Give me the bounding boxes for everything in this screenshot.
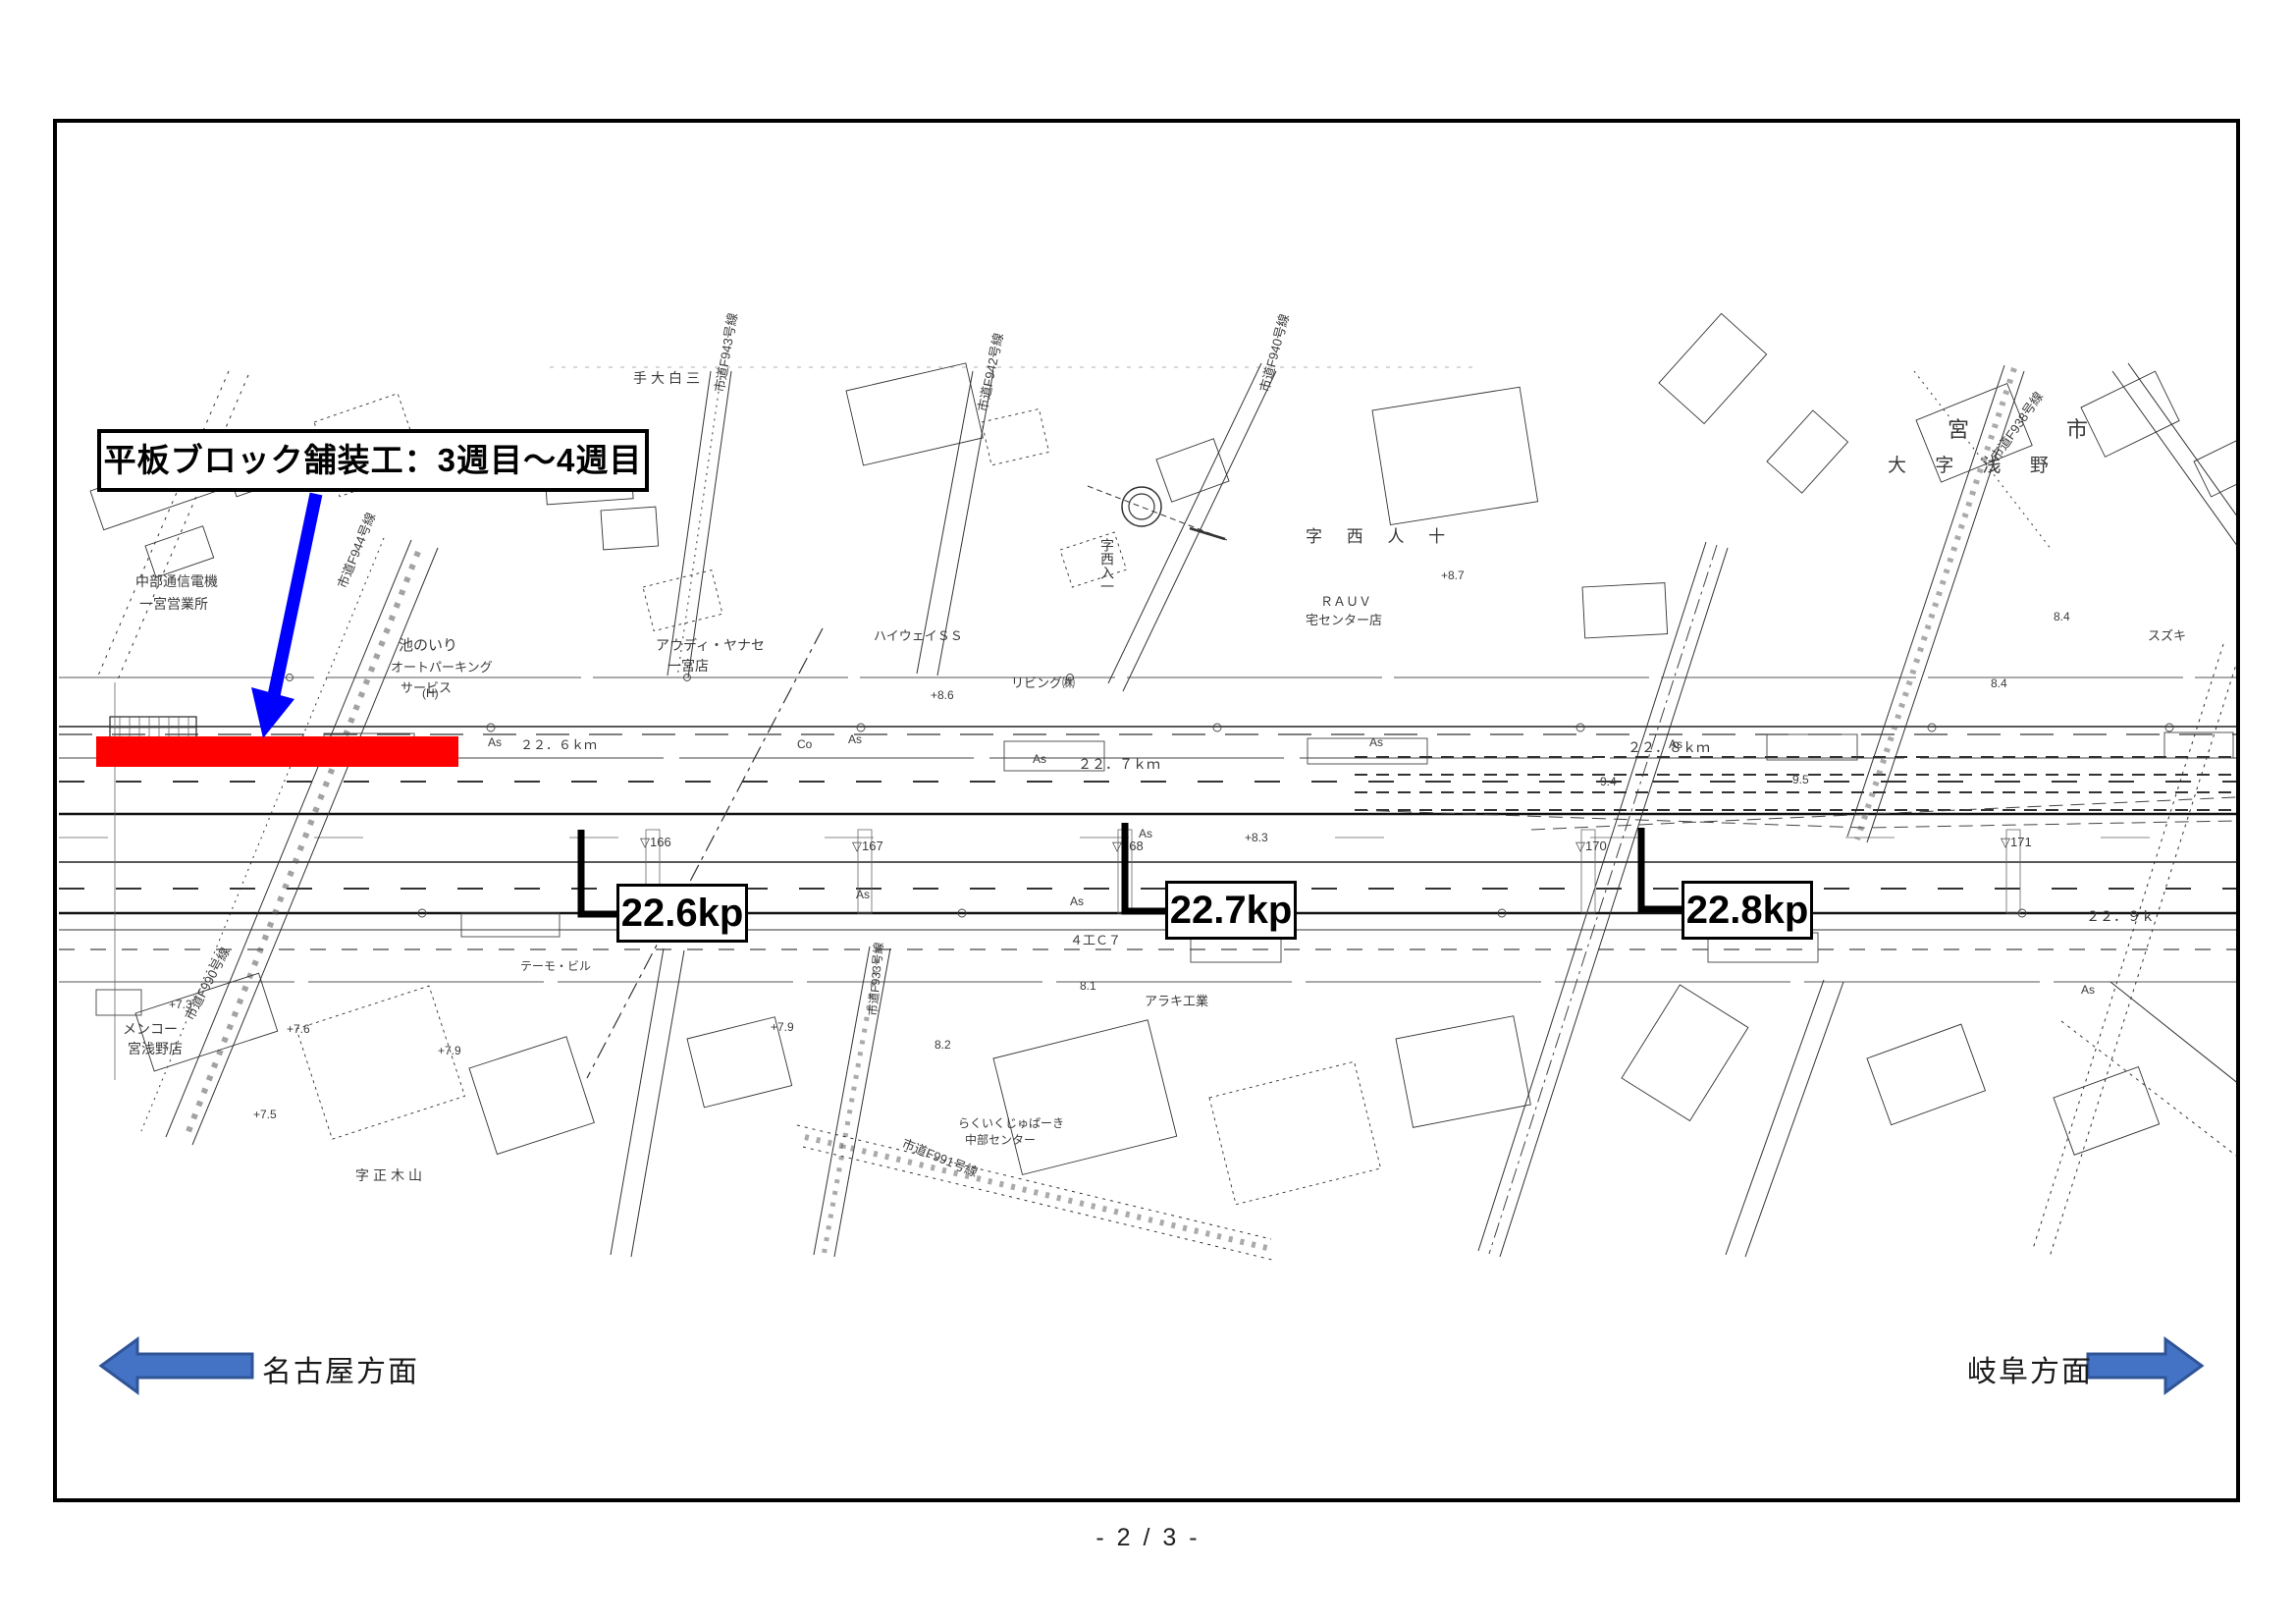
- page-border-frame: [53, 119, 2240, 1502]
- work-label-callout: 平板ブロック舗装工：3週目～4週目: [97, 429, 649, 492]
- work-zone-highlight-bar: [96, 736, 458, 767]
- page-number: - 2 / 3 -: [0, 1524, 2296, 1552]
- direction-label-nagoya: 名古屋方面: [262, 1347, 419, 1390]
- document-page: 宮市大 字 浅 野字 西 人 十字西入一手大白三中部通信電機一宮営業所池のいりオ…: [0, 0, 2296, 1624]
- direction-label-gifu: 岐阜方面: [1967, 1347, 2093, 1390]
- kp-marker-22-7: 22.7kp: [1165, 881, 1297, 940]
- kp-marker-22-6: 22.6kp: [616, 884, 748, 943]
- kp-marker-22-8: 22.8kp: [1682, 881, 1813, 940]
